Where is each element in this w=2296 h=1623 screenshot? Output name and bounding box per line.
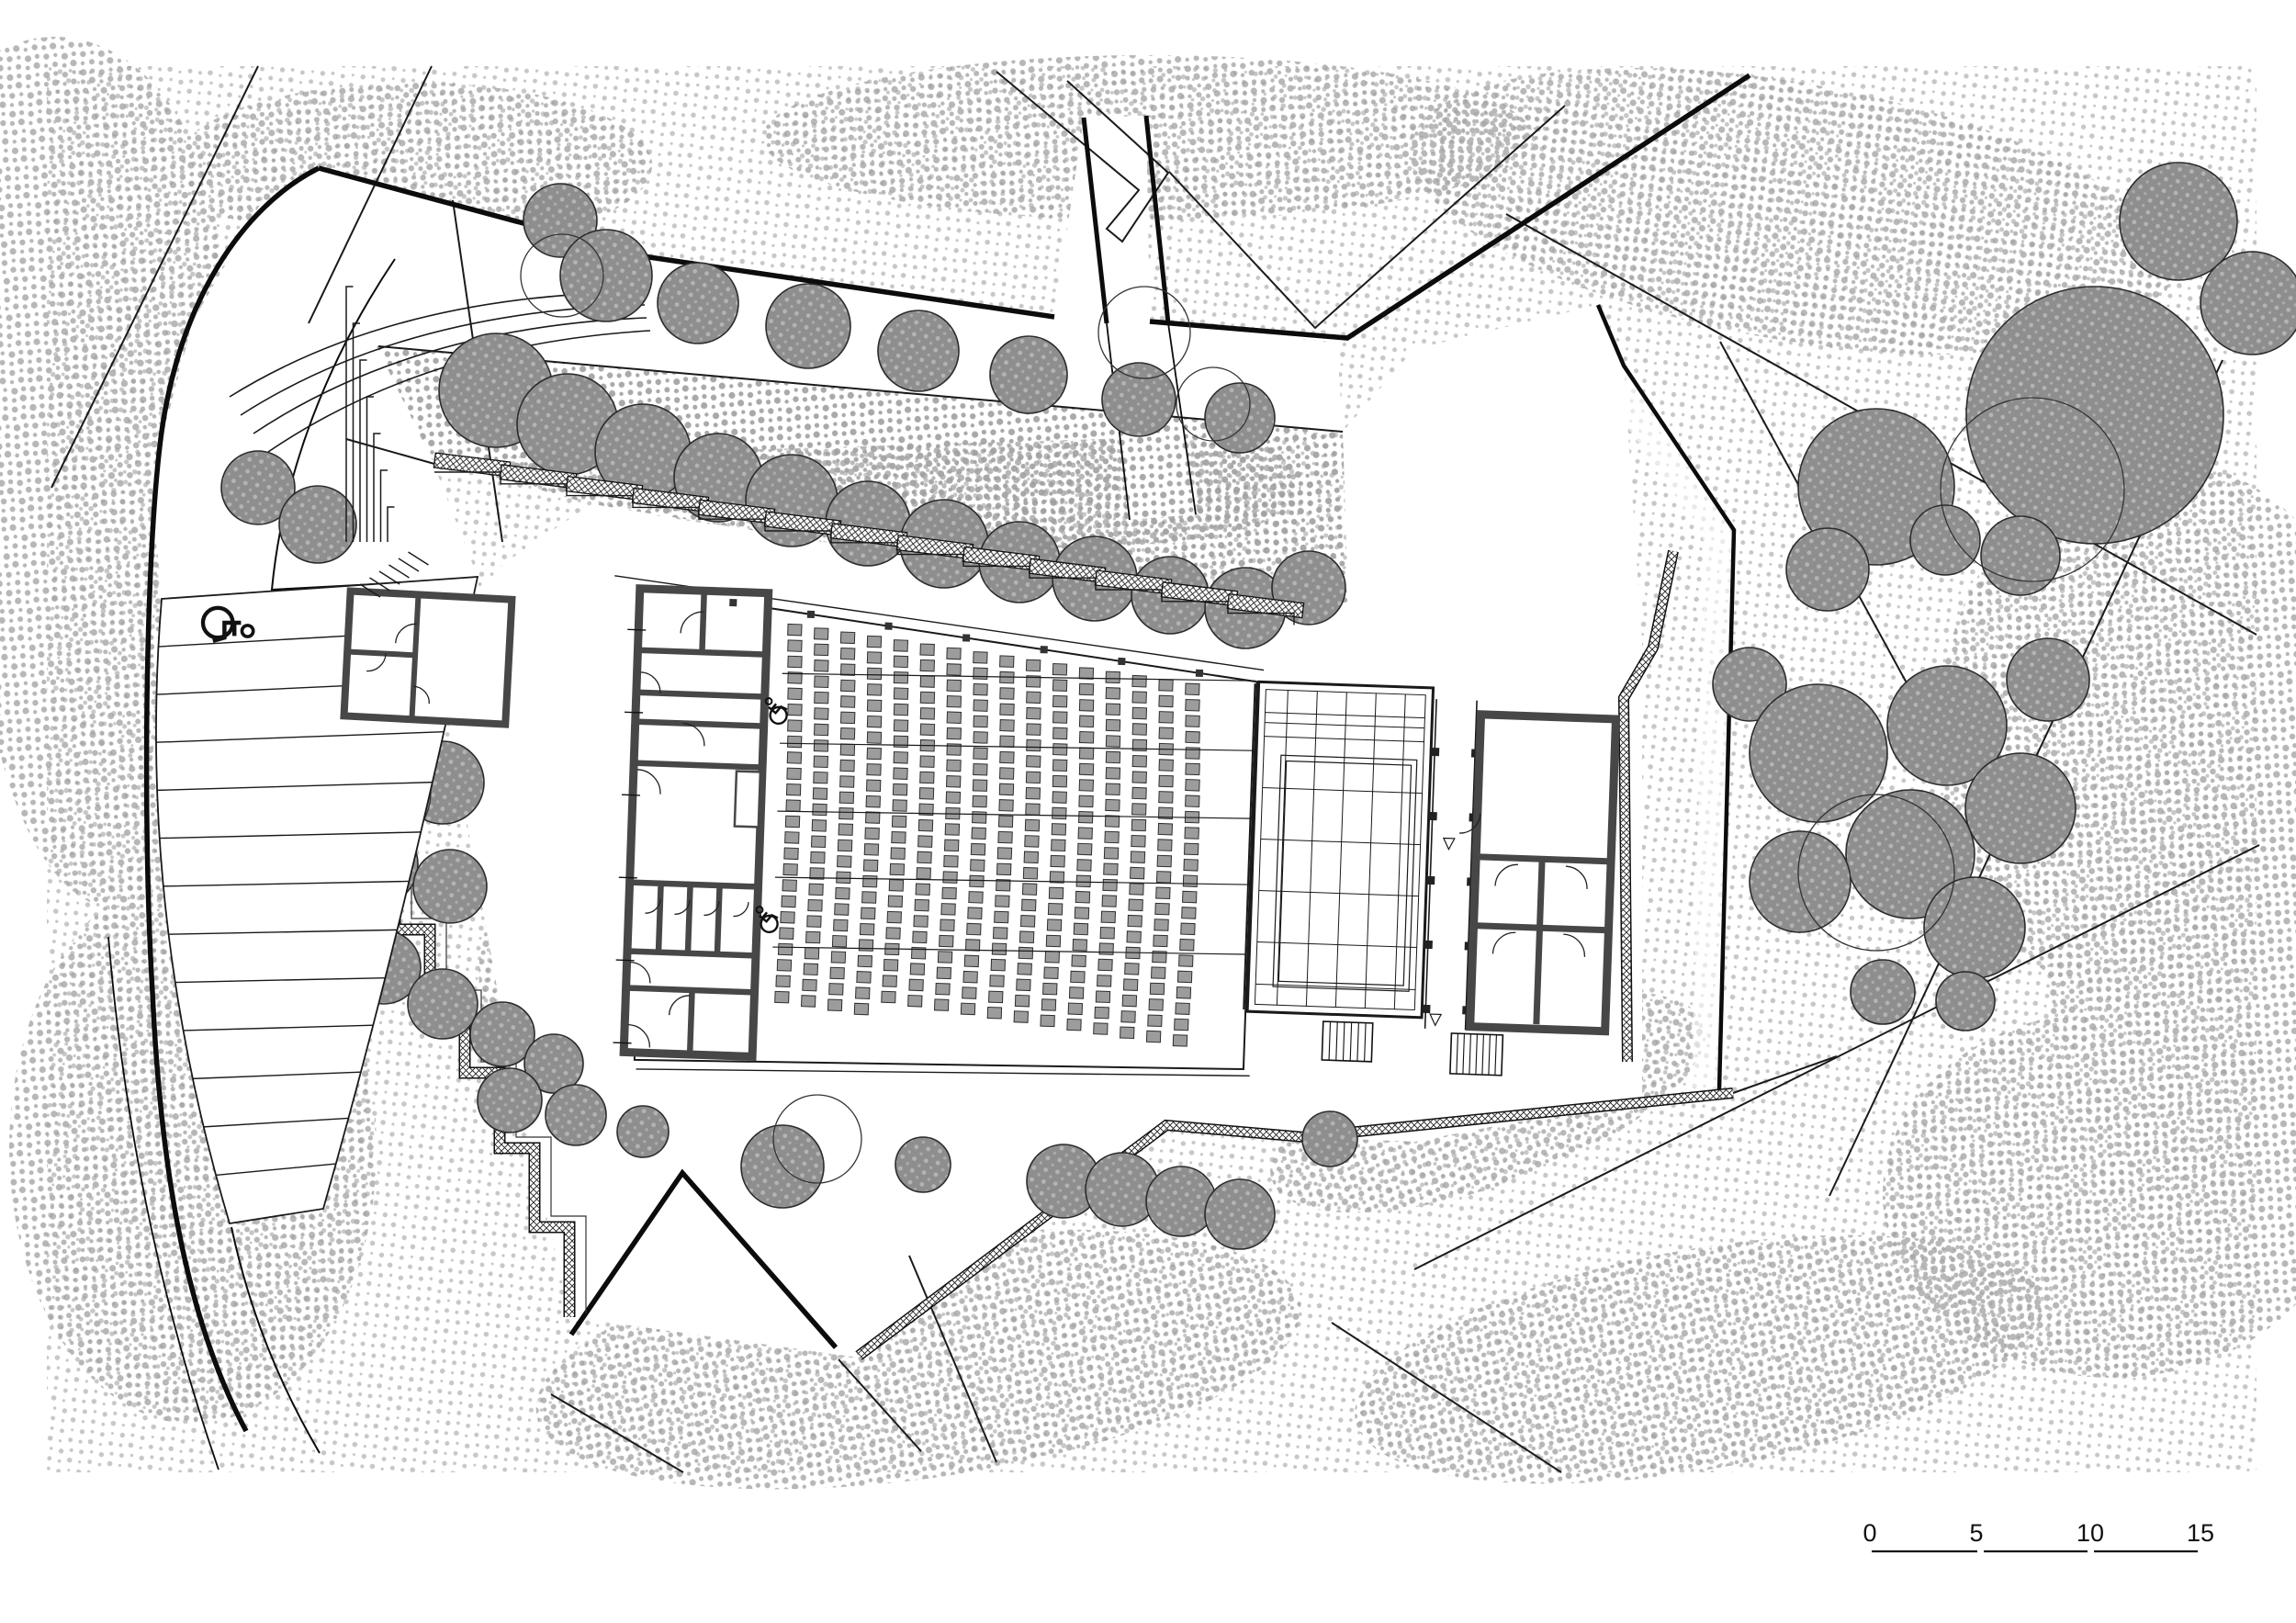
tree <box>878 310 959 391</box>
seat <box>1156 887 1170 899</box>
tree <box>1936 972 1995 1031</box>
tree <box>279 486 356 563</box>
corridor-column <box>1424 941 1433 949</box>
tree <box>766 284 850 368</box>
wall-column <box>1041 646 1048 653</box>
seat <box>1026 772 1040 783</box>
seat <box>1155 903 1169 915</box>
seat <box>1158 823 1172 835</box>
seat <box>1027 756 1041 768</box>
scale-label-0: 0 <box>1863 1519 1876 1547</box>
seat <box>1156 872 1170 884</box>
seat <box>920 708 934 720</box>
seat <box>1045 952 1059 964</box>
tree <box>658 263 738 344</box>
seat <box>1186 731 1199 743</box>
seat <box>838 840 851 851</box>
seat <box>1099 943 1113 955</box>
seat <box>920 772 934 783</box>
wall-column <box>962 634 970 641</box>
seat <box>1000 688 1014 700</box>
seat <box>920 692 934 704</box>
seat <box>814 772 827 783</box>
seat <box>1158 840 1172 851</box>
tree <box>1750 684 1887 822</box>
seat <box>813 788 827 800</box>
seat <box>1186 795 1199 807</box>
wall-tick <box>616 960 635 961</box>
site-plan-drawing: 0 5 10 15 <box>0 0 2296 1623</box>
tree <box>408 969 478 1039</box>
seat <box>917 868 930 880</box>
seat <box>777 960 791 972</box>
seat <box>863 875 877 887</box>
seat <box>974 683 987 695</box>
seat <box>946 792 960 804</box>
seat <box>974 716 987 727</box>
seat <box>866 795 880 807</box>
seat <box>972 828 985 840</box>
seat <box>867 764 881 776</box>
seat <box>969 892 983 904</box>
seat <box>783 863 797 875</box>
seat <box>920 724 934 736</box>
seat <box>841 696 855 708</box>
seat <box>1079 748 1093 760</box>
seat <box>804 964 817 975</box>
seat <box>1075 907 1088 919</box>
seat <box>1044 967 1058 979</box>
wall-column <box>1196 670 1203 677</box>
seat <box>894 704 907 716</box>
tree <box>1205 383 1275 453</box>
seat <box>973 795 986 807</box>
seat <box>1096 991 1109 1003</box>
corridor-column <box>1431 748 1439 756</box>
seat <box>913 931 927 943</box>
seat <box>886 928 900 940</box>
seat <box>1023 867 1037 879</box>
seat <box>861 907 875 919</box>
seat <box>1176 987 1190 999</box>
seat <box>840 744 854 756</box>
seat <box>1185 843 1199 855</box>
seat <box>1176 1003 1189 1015</box>
seat <box>947 712 961 724</box>
foyer-rooms <box>613 588 769 1056</box>
seat <box>811 836 825 848</box>
tree <box>1981 516 2060 595</box>
seat <box>1106 688 1120 700</box>
seat <box>1130 884 1143 896</box>
seat <box>815 724 828 736</box>
seat <box>970 875 984 887</box>
seat <box>894 640 907 652</box>
seat <box>1157 855 1171 867</box>
seat <box>1128 915 1142 927</box>
seat <box>802 996 816 1008</box>
seat <box>1000 768 1014 780</box>
seat <box>1131 836 1145 848</box>
seat <box>857 972 871 984</box>
seat <box>1149 999 1163 1011</box>
seat <box>866 780 880 792</box>
seat <box>1074 923 1087 935</box>
seat <box>1053 727 1067 739</box>
seat <box>944 840 958 851</box>
seat <box>940 919 954 931</box>
seat <box>1048 904 1062 916</box>
wall-column <box>729 599 737 606</box>
seat <box>943 872 957 884</box>
seat <box>918 819 932 831</box>
seat <box>807 916 821 928</box>
seat <box>1132 675 1146 687</box>
seat <box>884 959 897 971</box>
seat <box>1159 760 1173 772</box>
seat <box>947 664 961 676</box>
seat <box>936 983 950 995</box>
seat <box>920 644 934 656</box>
seat <box>839 792 853 804</box>
seat <box>1148 1015 1162 1027</box>
seat <box>859 940 872 952</box>
seat <box>1051 855 1064 867</box>
seat <box>938 952 951 964</box>
seat <box>919 788 933 800</box>
seat <box>971 860 985 872</box>
seat <box>987 1007 1001 1019</box>
seat <box>867 684 881 696</box>
seat <box>1000 720 1014 732</box>
seat <box>995 911 1008 923</box>
seat <box>1073 940 1086 952</box>
tree <box>2007 638 2089 721</box>
seat <box>1052 792 1066 804</box>
seat <box>1154 919 1168 931</box>
seat <box>840 760 854 772</box>
seat <box>1022 884 1036 896</box>
seat <box>1132 772 1146 783</box>
seat <box>1049 887 1063 899</box>
seat <box>1025 836 1039 848</box>
seat <box>1052 824 1065 836</box>
seat <box>1132 724 1146 736</box>
seat <box>1079 780 1093 792</box>
seat <box>1079 700 1093 712</box>
seat <box>1159 680 1173 692</box>
seat <box>974 668 987 680</box>
seat <box>944 856 958 868</box>
seat <box>1075 891 1089 903</box>
seat <box>1100 928 1114 940</box>
seat <box>814 740 827 752</box>
seat <box>786 783 800 795</box>
stage <box>1244 682 1433 1018</box>
seat <box>947 776 961 788</box>
seat <box>974 732 987 744</box>
tree <box>560 230 652 321</box>
seat <box>803 979 816 991</box>
seat <box>867 716 881 727</box>
seat <box>947 696 961 708</box>
seat <box>967 923 981 935</box>
seat <box>1179 955 1193 967</box>
seat <box>1122 995 1136 1007</box>
seat <box>1000 704 1014 716</box>
seat <box>815 708 828 720</box>
seat <box>989 991 1003 1003</box>
seat <box>1019 947 1032 959</box>
seat <box>991 959 1005 971</box>
seat <box>1159 792 1173 804</box>
seat <box>829 984 843 996</box>
scale-label-10: 10 <box>2077 1519 2104 1547</box>
seat <box>815 644 828 656</box>
tree <box>1750 831 1851 932</box>
seat <box>867 748 881 760</box>
seat <box>1027 692 1041 704</box>
seat <box>838 824 852 836</box>
seat <box>1069 987 1083 999</box>
seat <box>831 952 845 964</box>
seat <box>1186 683 1199 695</box>
seat <box>974 652 987 664</box>
seat <box>1015 995 1029 1007</box>
seat <box>962 987 976 999</box>
seat <box>1079 795 1093 807</box>
seat <box>1132 707 1146 719</box>
seat <box>860 923 873 935</box>
seat <box>1159 727 1173 739</box>
seat <box>1052 664 1066 676</box>
backstage-rooms <box>1453 714 1616 1031</box>
seat <box>1053 744 1067 756</box>
seat <box>893 800 906 812</box>
seat <box>1186 780 1199 792</box>
seat <box>1106 704 1120 716</box>
seat <box>994 928 1007 940</box>
seat <box>780 928 793 940</box>
seat <box>811 851 825 863</box>
seat <box>1052 840 1065 851</box>
seat <box>888 896 902 907</box>
seat <box>1173 1035 1187 1047</box>
seat <box>920 756 934 768</box>
seat <box>1177 971 1191 983</box>
tree <box>478 1068 542 1133</box>
tree <box>1205 1179 1275 1249</box>
seat <box>941 904 955 916</box>
seat <box>1105 816 1119 828</box>
seat <box>1181 923 1195 935</box>
seat <box>1079 668 1093 680</box>
seat <box>834 919 848 931</box>
seat <box>832 936 846 948</box>
seat <box>892 816 906 828</box>
wall-column <box>884 623 892 630</box>
wall-column <box>807 611 815 618</box>
seat <box>920 659 934 671</box>
seat <box>1052 680 1066 692</box>
seat <box>788 656 802 668</box>
tree <box>1910 505 1980 575</box>
corridor-column <box>1429 812 1437 820</box>
seat <box>1076 875 1090 887</box>
seat <box>1095 1007 1109 1019</box>
seat <box>996 896 1009 907</box>
seat <box>894 656 907 668</box>
seat <box>838 856 851 868</box>
seat <box>1106 799 1120 811</box>
seat <box>894 671 907 683</box>
seat <box>787 736 801 748</box>
tree <box>1786 528 1869 611</box>
seat <box>974 700 987 712</box>
seat <box>1052 695 1066 707</box>
seat <box>1041 1015 1054 1027</box>
seat <box>893 783 906 795</box>
seat <box>1106 783 1120 795</box>
seat <box>867 636 881 648</box>
seat <box>827 999 841 1011</box>
seat <box>1027 724 1041 736</box>
seat <box>887 911 901 923</box>
seat <box>1019 931 1033 943</box>
seat <box>815 692 828 704</box>
seat <box>856 987 870 999</box>
seat <box>1159 695 1173 707</box>
seat <box>998 816 1012 828</box>
seat <box>1152 967 1165 979</box>
seat <box>889 880 903 892</box>
seat <box>781 912 794 924</box>
seat <box>782 896 795 907</box>
seat <box>788 704 802 716</box>
seat <box>1022 899 1036 911</box>
seat <box>890 863 904 875</box>
seat <box>862 892 876 904</box>
seat <box>866 812 880 824</box>
seat <box>778 943 792 955</box>
seat <box>809 884 823 896</box>
seat <box>785 832 799 844</box>
seat <box>971 843 985 855</box>
seat <box>1079 763 1093 775</box>
seat <box>1154 935 1167 947</box>
scale-label-15: 15 <box>2187 1519 2214 1547</box>
seat <box>999 800 1013 812</box>
seat <box>1146 1031 1160 1043</box>
seat <box>1025 819 1039 831</box>
seat <box>1017 979 1030 991</box>
seat <box>968 907 982 919</box>
seat <box>1159 712 1173 724</box>
toilet-block <box>344 592 512 725</box>
seat <box>1077 860 1091 872</box>
seat <box>1098 959 1112 971</box>
seat <box>1159 775 1173 787</box>
seat <box>840 632 854 644</box>
seat <box>1102 896 1116 907</box>
seat <box>942 887 956 899</box>
seat <box>867 668 881 680</box>
seat <box>1079 812 1093 824</box>
seat <box>945 824 959 836</box>
seat <box>947 680 961 692</box>
wall-tick <box>622 795 640 795</box>
seat <box>1131 867 1144 879</box>
seat <box>916 884 929 896</box>
seat <box>1106 719 1120 731</box>
seat <box>1043 983 1057 995</box>
seat <box>973 812 986 824</box>
seat <box>858 955 872 967</box>
seat <box>894 752 907 764</box>
tree <box>1966 287 2223 544</box>
seat <box>805 948 818 960</box>
seat <box>1000 736 1014 748</box>
seat <box>854 1003 868 1015</box>
seat <box>992 943 1006 955</box>
seat <box>963 971 977 983</box>
seat <box>1184 860 1198 872</box>
seat <box>814 628 827 640</box>
seat <box>1125 964 1139 975</box>
seat <box>917 851 931 863</box>
seat <box>1121 1011 1135 1023</box>
seat <box>815 676 828 688</box>
seat <box>882 991 895 1003</box>
seat <box>788 720 802 732</box>
seat <box>1180 939 1194 951</box>
tree <box>1146 1167 1216 1236</box>
seat <box>1132 756 1146 768</box>
seat <box>785 816 799 828</box>
seat <box>786 800 800 812</box>
seat <box>915 899 929 911</box>
seat <box>787 768 801 780</box>
seat <box>1046 935 1060 947</box>
wall-tick <box>627 629 646 630</box>
seat <box>1182 907 1196 919</box>
seat <box>1175 1019 1188 1031</box>
wall-tick <box>625 712 643 713</box>
seat <box>1052 807 1066 819</box>
tree <box>2200 252 2296 355</box>
seat <box>1186 716 1199 727</box>
seat <box>891 848 905 860</box>
seat <box>1072 955 1086 967</box>
seat <box>1026 659 1040 671</box>
seat <box>1106 736 1120 748</box>
seat <box>788 688 802 700</box>
seat <box>775 991 789 1003</box>
seat <box>914 916 928 928</box>
tree <box>617 1106 669 1157</box>
wall-tick <box>613 1043 632 1043</box>
tree <box>990 336 1067 413</box>
seat <box>788 624 802 636</box>
tree <box>895 1137 951 1192</box>
seat <box>1079 716 1093 727</box>
seat <box>1041 999 1055 1011</box>
tree <box>546 1085 606 1145</box>
seat <box>1106 768 1120 780</box>
seat <box>782 880 796 892</box>
seat <box>961 1003 974 1015</box>
tree <box>1924 877 2025 978</box>
